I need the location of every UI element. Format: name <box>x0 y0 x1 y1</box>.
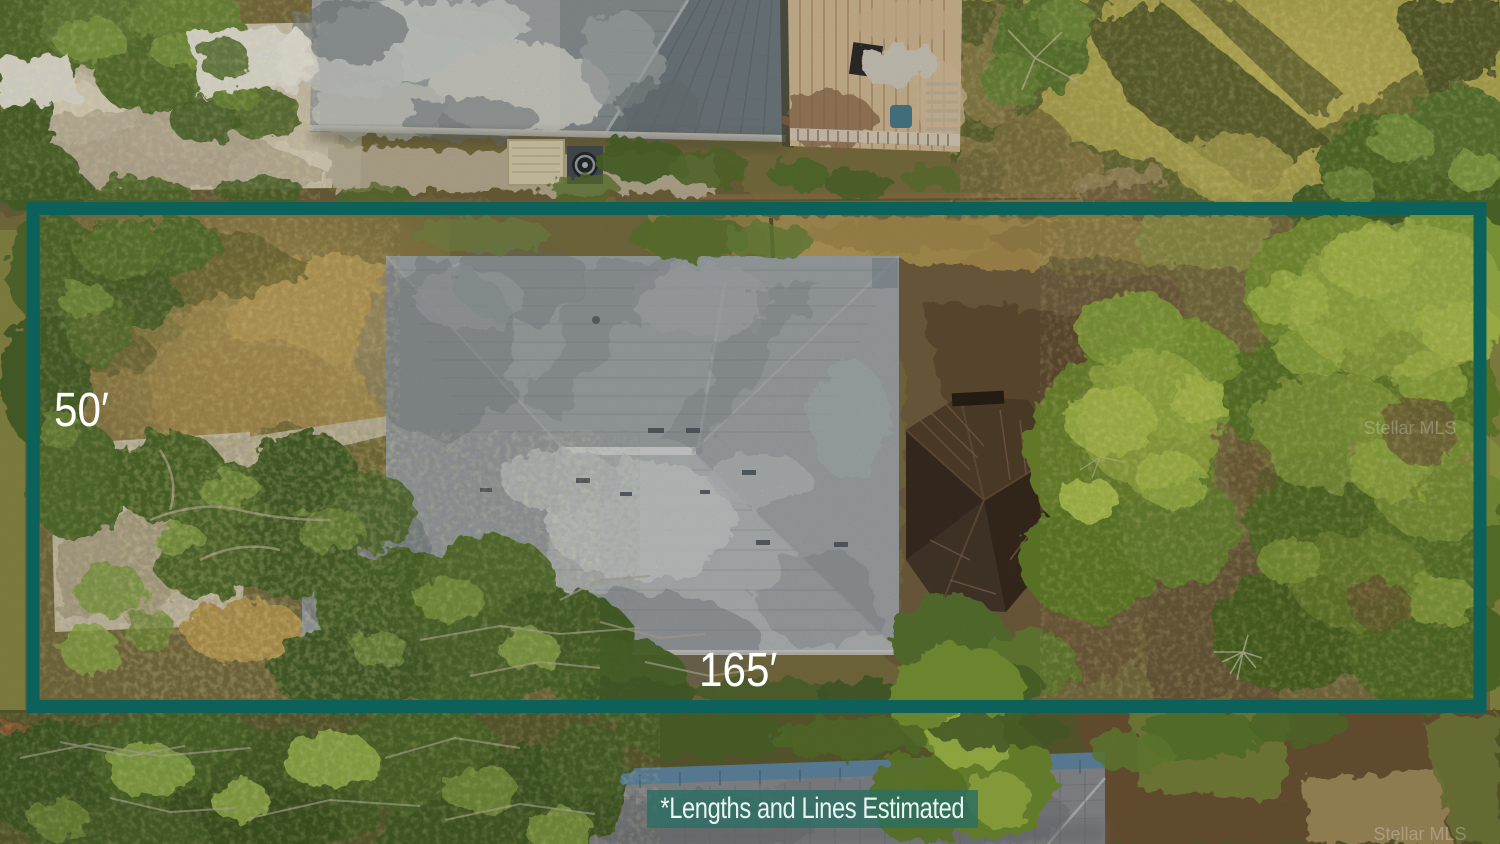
svg-text:Stellar MLS: Stellar MLS <box>1373 824 1466 844</box>
svg-text:Stellar MLS: Stellar MLS <box>1363 418 1456 438</box>
